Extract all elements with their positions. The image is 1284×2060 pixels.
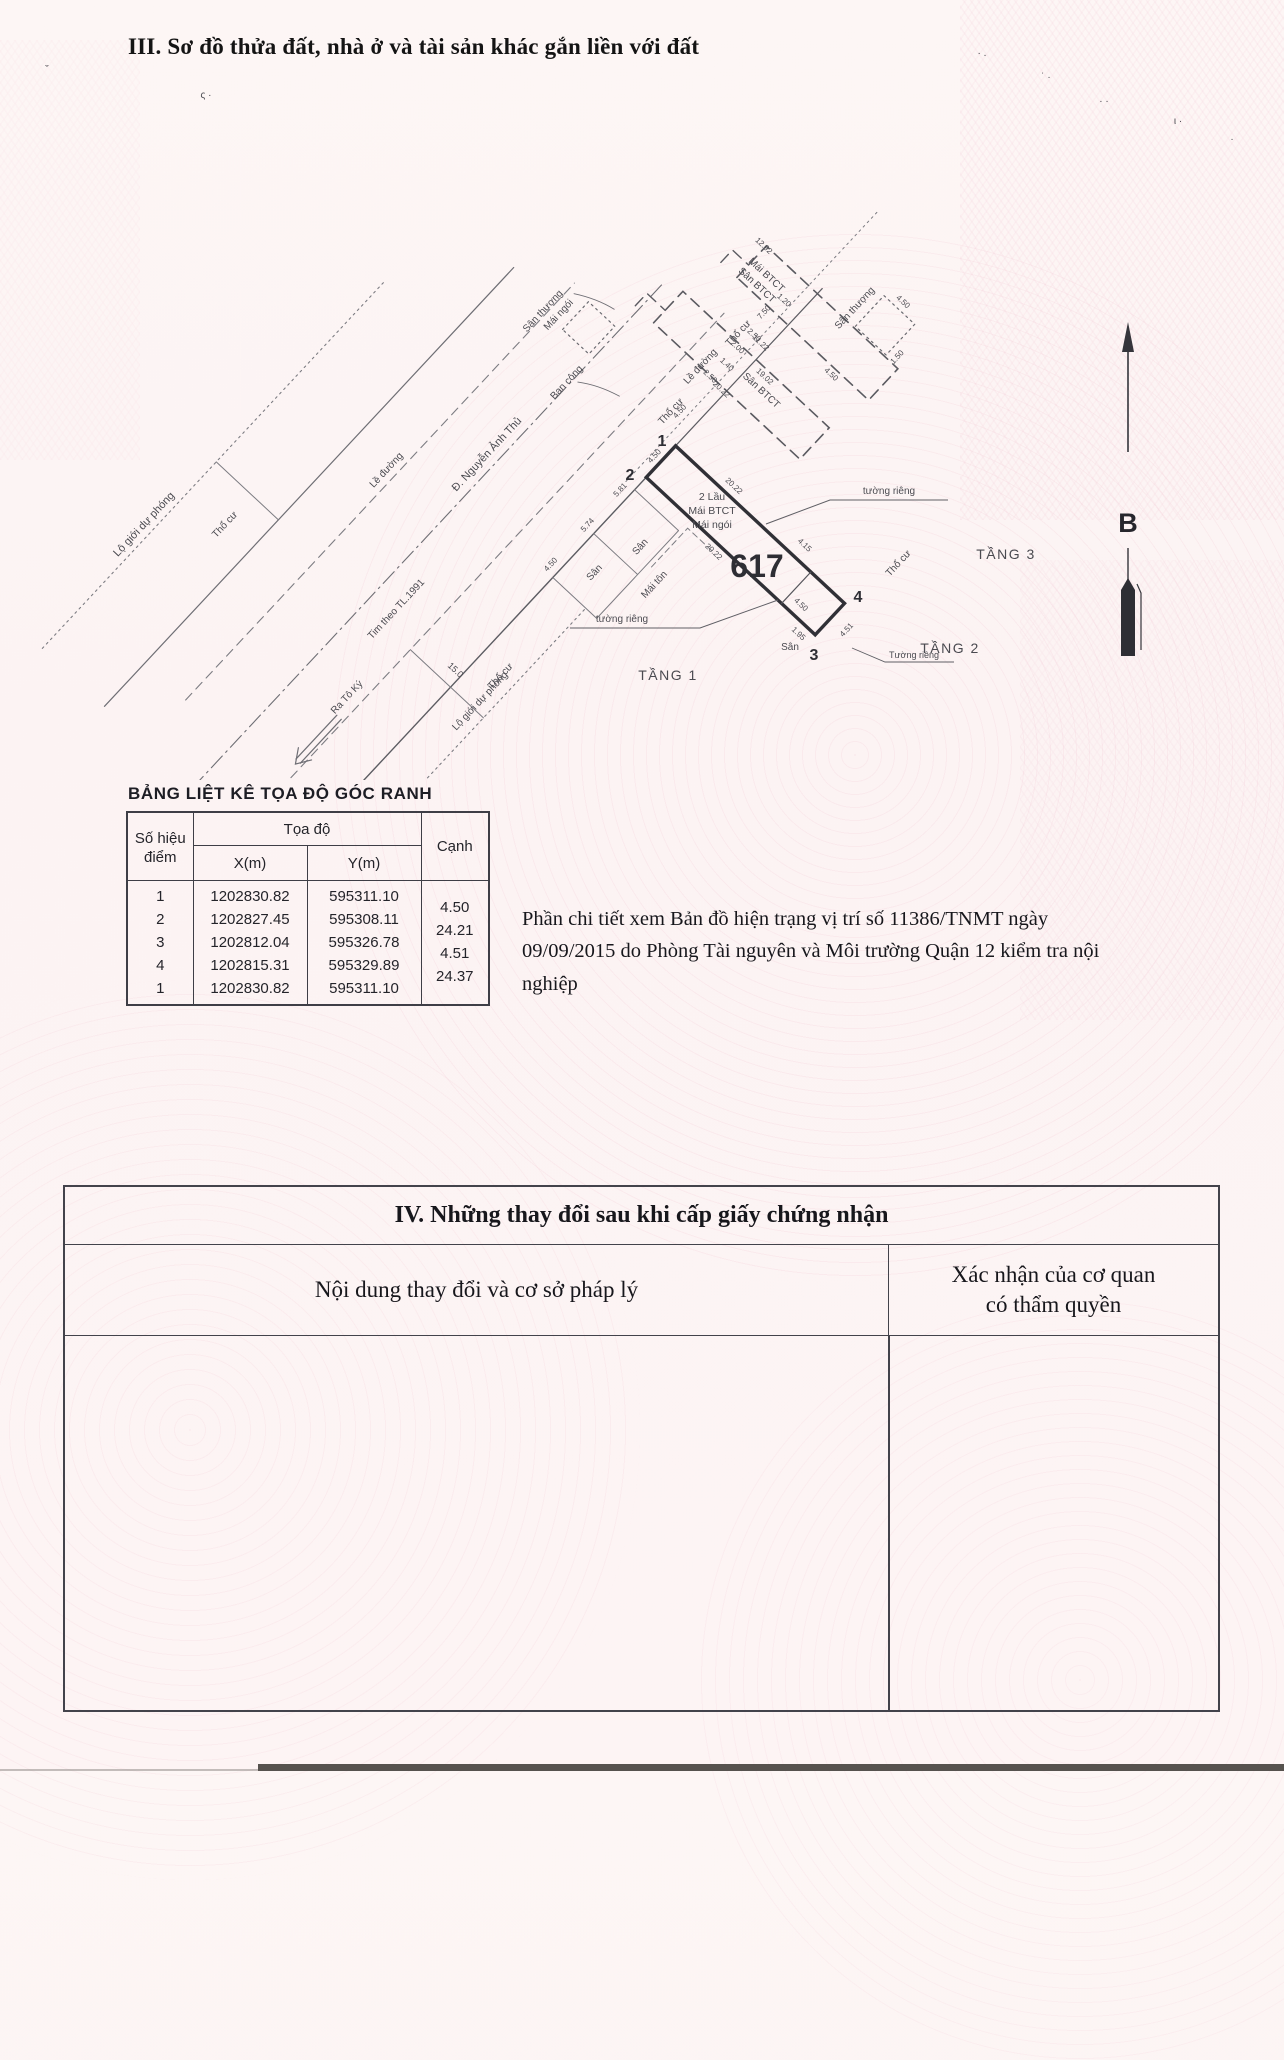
coordinate-table-block: BẢNG LIỆT KÊ TỌA ĐỘ GÓC RANH Số hiệu điể… [126,784,492,1006]
vertex-1-label: 1 [658,433,667,450]
callout-leader [574,282,614,321]
direction-arrow-lines [296,715,341,763]
diagram-label: 1.20 [775,292,793,310]
street-label-lo-gioi-du-phong: Lộ giới dự phóng [111,490,177,559]
table-cell: 1202830.82 [194,977,307,1000]
col-header-x: X(m) [193,846,307,881]
diagram-label: Sân [781,642,799,653]
table-cell: 3 [128,931,193,954]
section4-empty-body [65,1336,1218,1710]
diagram-label: 15.0 [446,660,466,679]
col-header-edge: Cạnh [421,812,489,881]
diagram-label: 1.95 [790,625,808,643]
table-cell: 595311.10 [308,977,421,1000]
diagram-label: 1.50 [889,348,907,366]
section4-col-left-header: Nội dung thay đổi và cơ sở pháp lý [65,1245,889,1335]
screen-annotations-group: B 12342 LầuMái BTCTMái ngói617tường riên… [45,48,1234,683]
diagram-label: Sân [630,537,650,558]
table-cell-edge: 24.37 [422,965,489,988]
diagram-label: ι · [1174,116,1182,127]
diagram-label: 12.92 [753,236,774,257]
diagram-label: 4.50 [792,596,810,614]
north-label: B [1118,508,1138,538]
planned-road-dotted-line [42,283,383,649]
coordinate-table-title: BẢNG LIỆT KÊ TỌA ĐỘ GÓC RANH [128,784,492,804]
diagram-label: Mái BTCT [688,505,736,517]
diagram-label: Tim theo TL.1991 [366,577,427,642]
table-cell: 1202830.82 [194,885,307,908]
diagram-label: ˙ · [1041,72,1050,83]
section4-col-right-header: Xác nhận của cơ quan có thẩm quyền [889,1245,1218,1335]
edge-lengths-column: 4.5024.214.5124.37 [421,881,489,1006]
diagram-label: Lề đường [367,450,406,490]
point-ids-column: 12341 [127,881,193,1006]
diagram-label: Thổ cư [883,547,914,579]
tick-line [216,462,278,520]
table-cell-edge: 4.51 [422,942,489,965]
callout-leader [766,500,948,524]
diagram-label: Sân [585,563,605,584]
diagram-label: · . [978,48,987,59]
diagram-label: Thổ cư [210,509,241,541]
diagram-label: 20.22 [703,542,724,563]
table-cell: 1 [128,977,193,1000]
floor-label-3: TẦNG 3 [976,546,1036,562]
road-centerline [192,284,663,780]
diagram-label: 4.51 [838,621,856,639]
table-cell: 1 [128,885,193,908]
floor-label-2: TẦNG 2 [920,640,980,656]
table-cell: 2 [128,908,193,931]
diagram-label: ς · [201,90,212,101]
diagram-label: tường riêng [863,486,915,497]
diagram-label: · · [1099,96,1108,107]
table-cell-edge: 24.21 [422,919,489,942]
table-cell-edge: 4.50 [422,896,489,919]
diagram-label: · [1230,134,1233,145]
parcel-division-lines [553,490,679,619]
plot-number-label: 617 [730,548,783,584]
table-cell: 595311.10 [308,885,421,908]
detail-note-paragraph: Phần chi tiết xem Bản đồ hiện trạng vị t… [522,903,1106,1000]
diagram-label: 5.74 [579,516,597,534]
diagram-label: 2.00 [729,338,747,356]
sidewalk-dashed-line [281,313,724,780]
table-cell: 1202827.45 [194,908,307,931]
north-arrow: B [1118,322,1141,656]
diagram-label: Sân thượng [833,285,877,331]
vertex-4-label: 4 [854,589,863,606]
diagram-label: ˬ [45,55,49,67]
floor-label-1: TẦNG 1 [638,667,698,683]
diagram-label: 4.50 [822,366,840,384]
callout-leader [578,369,620,409]
rotated-plan-group: Lộ giới dự phóngThổ cưLề đườngĐ. Nguyễn … [31,0,1074,780]
diagram-label: 11.22 [751,333,772,353]
coordinate-table: Số hiệu điểm Tọa độ Cạnh X(m) Y(m) 12341… [126,811,490,1006]
table-cell: 4 [128,954,193,977]
col-header-y: Y(m) [307,846,421,881]
table-cell: 1202812.04 [194,931,307,954]
vertex-2-label: 2 [626,467,635,484]
col-header-coords: Tọa độ [193,812,421,846]
diagram-label: 1.40 [718,356,736,374]
table-cell: 595308.11 [308,908,421,931]
diagram-label: 7.50 [755,303,773,321]
section4-header-row: Nội dung thay đổi và cơ sở pháp lý Xác n… [65,1245,1218,1336]
diagram-label: 4.15 [796,536,814,554]
vertex-3-label: 3 [810,647,819,664]
diagram-label: tường riêng [596,614,648,625]
section4-table: IV. Những thay đổi sau khi cấp giấy chứn… [63,1185,1220,1712]
diagram-label: Mái ngói [692,519,732,531]
cadastral-diagram: Lộ giới dự phóngThổ cưLề đườngĐ. Nguyễn … [0,0,1284,780]
section4-title: IV. Những thay đổi sau khi cấp giấy chứn… [65,1187,1218,1245]
street-name-label: Đ. Nguyễn Ảnh Thủ [449,415,524,494]
table-cell: 595329.89 [308,954,421,977]
scan-edge-strip [258,1764,1284,1771]
diagram-label: 2 Lầu [699,491,725,503]
table-cell: 1202815.31 [194,954,307,977]
diagram-label: Ra Tô Ký [329,679,365,717]
col-header-point: Số hiệu điểm [127,812,193,881]
y-coords-column: 595311.10595308.11595326.78595329.895953… [307,881,421,1006]
section4-column-divider [888,1336,890,1710]
table-cell: 595326.78 [308,931,421,954]
direction-arrow-head [289,748,312,771]
sidewalk-dashed-line [186,283,575,700]
diagram-label: 4.50 [542,555,560,573]
x-coords-column: 1202830.821202827.451202812.041202815.31… [193,881,307,1006]
diagram-label: Mái tôn [639,569,669,600]
